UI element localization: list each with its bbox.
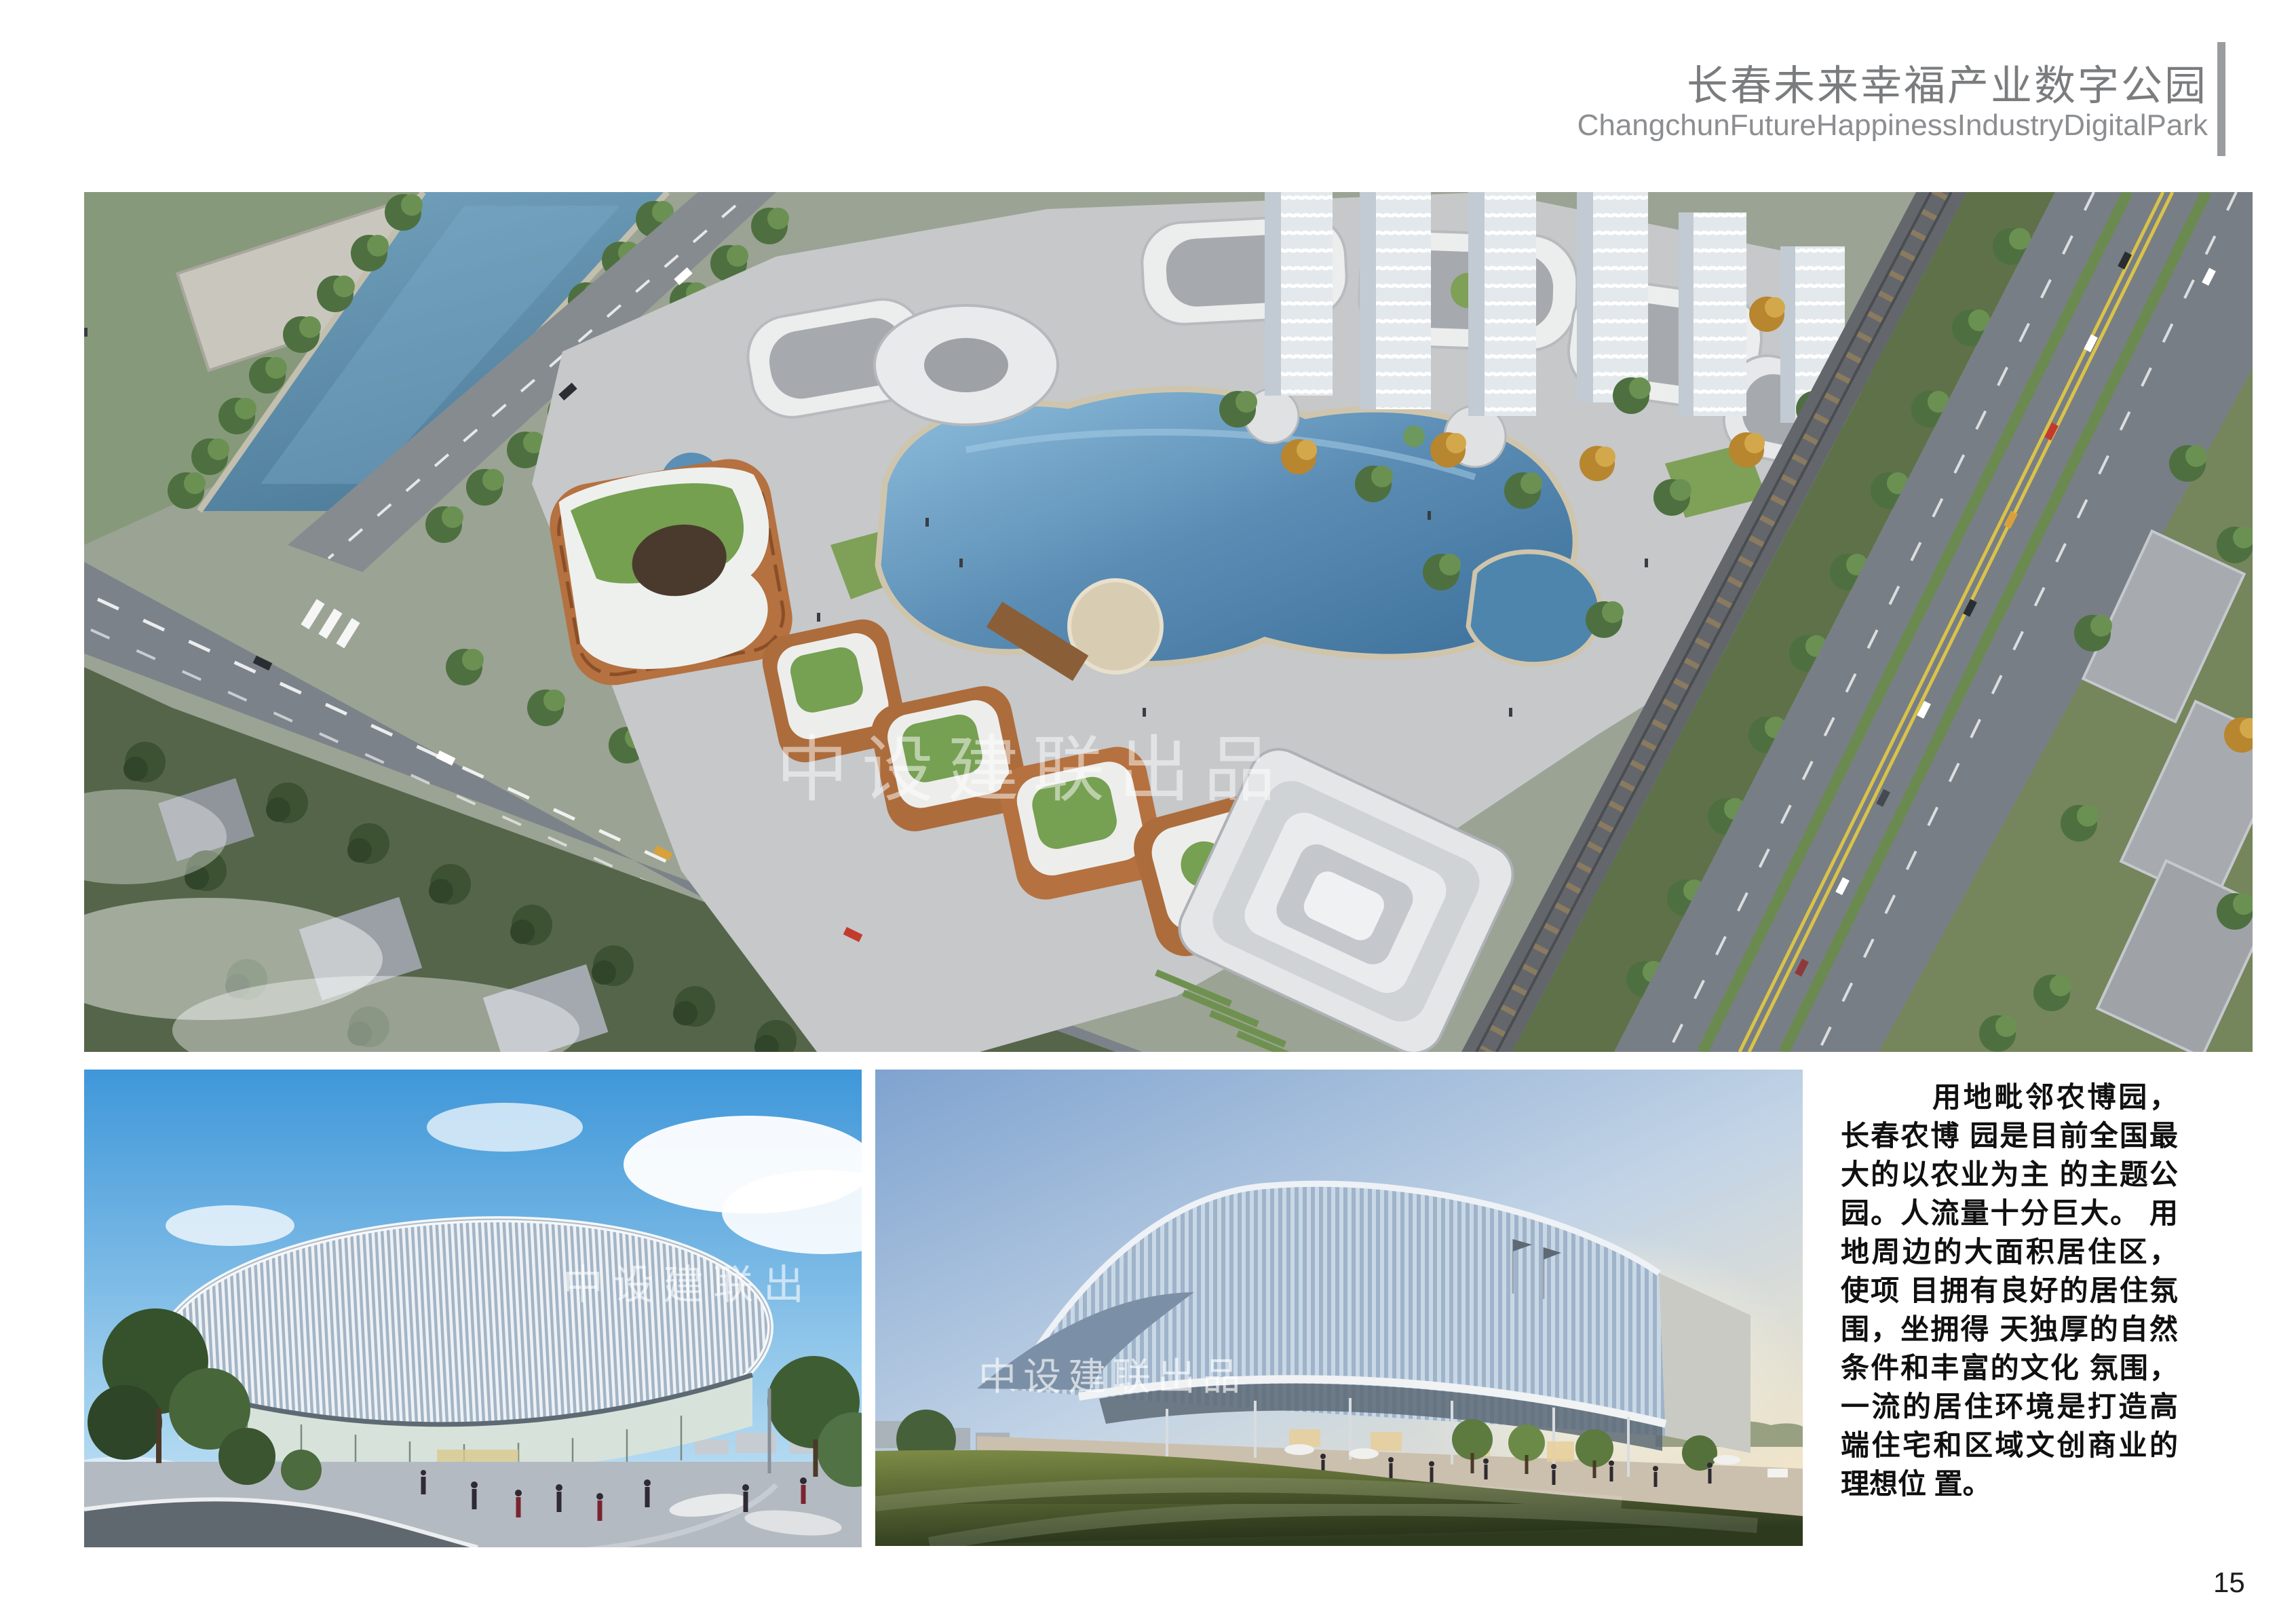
description-line: 使项 目拥有良好的居住氛 (1841, 1271, 2178, 1310)
watermark-text: 中设建联出品 (978, 1355, 1247, 1398)
description-line: 用地毗邻农博园， (1841, 1078, 2178, 1116)
page-subtitle: ChangchunFutureHappinessIndustryDigitalP… (1258, 109, 2208, 143)
page-title: 长春未来幸福产业数字公园 (1258, 52, 2208, 112)
description-paragraph: 用地毗邻农博园， 长春农博 园是目前全国最 大的以农业为主 的主题公 园。人流量… (1841, 1078, 2178, 1503)
description-line: 条件和丰富的文化 氛围， (1841, 1348, 2178, 1387)
description-line: 长春农博 园是目前全国最 (1841, 1116, 2178, 1155)
description-line: 围，坐拥得 天独厚的自然 (1841, 1310, 2178, 1348)
description-line: 园。人流量十分巨大。 用 (1841, 1194, 2178, 1232)
page-number: 15 (2213, 1566, 2245, 1599)
watermark-text: 中设建联出品 (776, 730, 1289, 810)
sunset-hall-photo: 中设建联出品 (875, 1070, 1803, 1546)
oval-pavilion-photo: 中设建联出 (84, 1070, 862, 1547)
header-accent-bar (2217, 42, 2225, 156)
main-aerial-rendering: 中设建联出品 (84, 192, 2253, 1052)
description-line: 理想位 置。 (1841, 1465, 2178, 1503)
description-line: 端住宅和区域文创商业的 (1841, 1426, 2178, 1465)
car (1767, 1469, 1788, 1477)
watermark-text: 中设建联出 (562, 1262, 814, 1308)
description-line: 大的以农业为主 的主题公 (1841, 1155, 2178, 1194)
west-terraced-building (543, 453, 799, 692)
description-line: 一流的居住环境是打造高 (1841, 1387, 2178, 1426)
description-line: 地周边的大面积居住区， (1841, 1232, 2178, 1271)
